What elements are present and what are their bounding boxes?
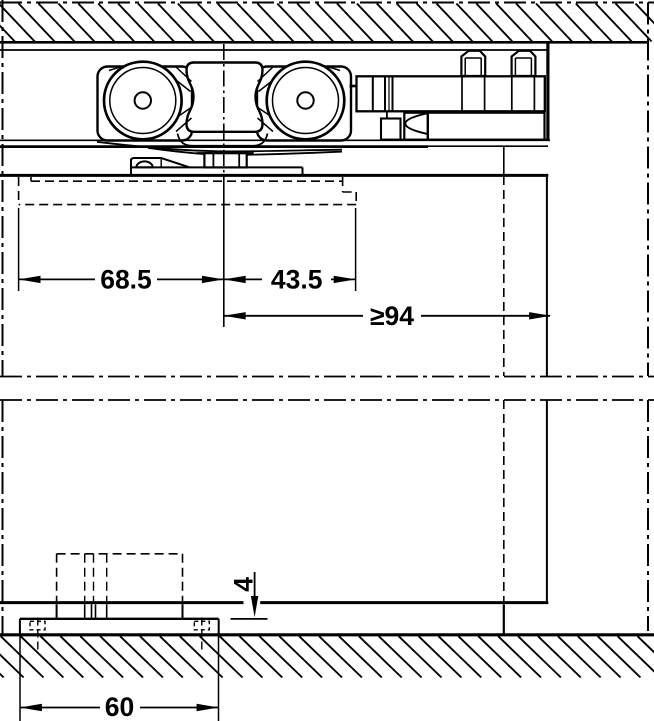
svg-text:43.5: 43.5 [271,265,323,295]
svg-text:60: 60 [105,692,134,721]
svg-text:4: 4 [228,577,258,592]
svg-text:≥94: ≥94 [370,301,414,331]
svg-text:68.5: 68.5 [100,265,152,295]
